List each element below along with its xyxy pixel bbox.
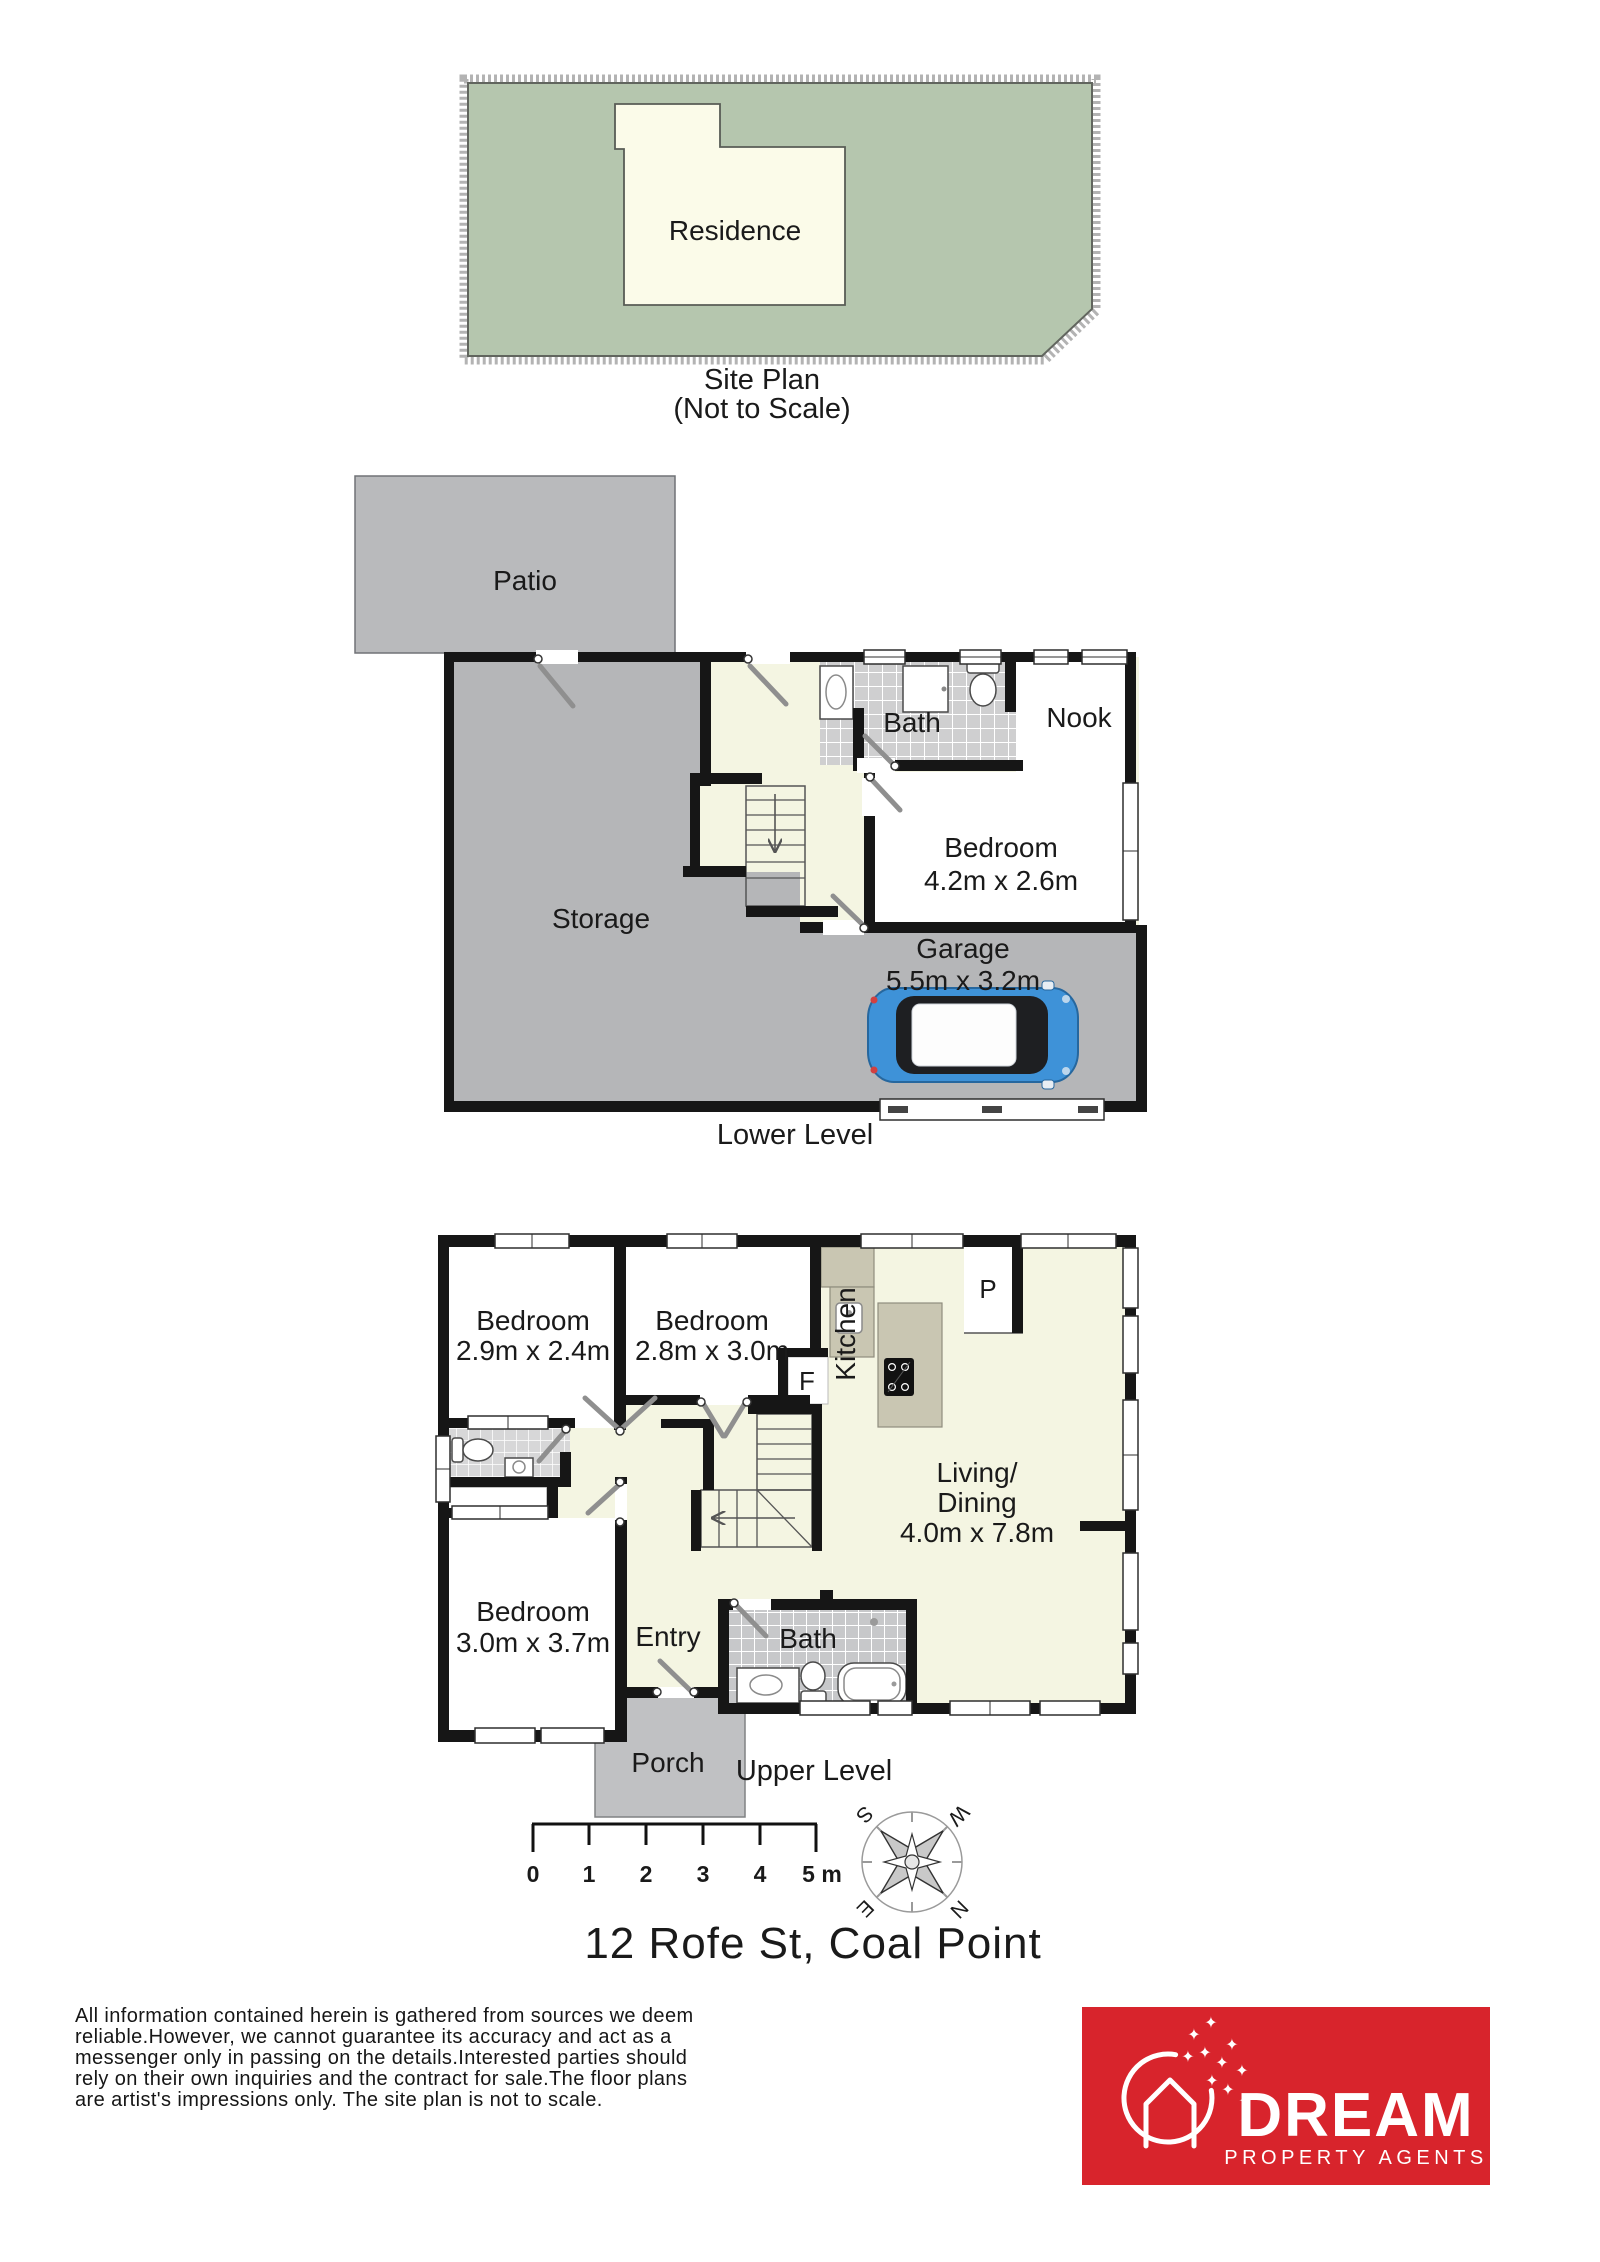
svg-text:✦: ✦ (1215, 2055, 1228, 2072)
sink-icon (750, 1675, 782, 1695)
storage-label: Storage (552, 903, 650, 934)
downlight-icon (870, 1618, 878, 1626)
svg-text:✦: ✦ (1225, 2037, 1238, 2054)
site-plan-subcaption: (Not to Scale) (673, 393, 850, 425)
window (495, 1234, 569, 1248)
sink-icon (826, 675, 846, 709)
toilet-icon (967, 660, 999, 706)
scale-tick-0: 0 (527, 1861, 540, 1887)
bedroom1-dims: 2.9m x 2.4m (456, 1335, 610, 1366)
window (800, 1701, 870, 1715)
window (1123, 1643, 1138, 1674)
scale-tick-4: 4 (754, 1861, 767, 1887)
window (1082, 650, 1127, 664)
floorplan-page: Residence Site Plan (Not to Scale) Patio (0, 0, 1600, 2262)
svg-text:✦: ✦ (1181, 2049, 1194, 2066)
shower-knob-icon (942, 687, 947, 692)
svg-text:✦: ✦ (1187, 2027, 1200, 2044)
scale-tick-3: 3 (697, 1861, 710, 1887)
window (1040, 1701, 1100, 1715)
lower-level-caption: Lower Level (717, 1119, 873, 1151)
window (1123, 1248, 1138, 1308)
bathtub-icon (838, 1663, 906, 1705)
entry-label: Entry (635, 1621, 700, 1652)
toilet-icon (801, 1662, 826, 1703)
disclaimer-line: messenger only in passing on the details… (75, 2047, 687, 2069)
living-label-1: Living/ (937, 1457, 1018, 1488)
pantry-label: P (979, 1274, 996, 1304)
window (960, 650, 1001, 664)
logo-brand-text: DREAM (1237, 2081, 1474, 2150)
window (468, 1416, 548, 1429)
window (436, 1436, 450, 1502)
compass-w: W (943, 1800, 973, 1830)
bath-upper-label: Bath (779, 1623, 837, 1654)
compass-e: E (852, 1895, 878, 1921)
upper-level-plan: Bedroom 2.9m x 2.4m Bedroom 2.8m x 3.0m … (436, 1234, 1138, 1817)
window (861, 1234, 963, 1248)
svg-text:✦: ✦ (1205, 2073, 1218, 2090)
svg-text:✦: ✦ (1204, 2015, 1217, 2032)
window (1021, 1234, 1116, 1248)
logo-tagline-text: PROPERTY AGENTS (1224, 2147, 1488, 2169)
window (1034, 650, 1068, 664)
porch-label: Porch (631, 1747, 704, 1778)
window (1123, 1553, 1138, 1630)
fridge-label: F (799, 1366, 815, 1396)
nook-label: Nook (1046, 702, 1112, 733)
living-label-2: Dining (937, 1487, 1016, 1518)
bedroom-lower-label: Bedroom (944, 832, 1058, 863)
bath-lower-label: Bath (883, 707, 941, 738)
disclaimer-line: reliable.However, we cannot guarantee it… (75, 2026, 672, 2048)
window (878, 1701, 912, 1715)
car-top-view-icon (868, 981, 1078, 1089)
svg-text:✦: ✦ (1198, 2045, 1211, 2062)
disclaimer-line: are artist's impressions only. The site … (75, 2089, 603, 2111)
residence-label: Residence (669, 215, 801, 246)
garage-label: Garage (916, 933, 1009, 964)
kitchen-counter (821, 1247, 874, 1287)
site-plan-caption: Site Plan (704, 364, 820, 396)
bedroom2-dims: 2.8m x 3.0m (635, 1335, 789, 1366)
site-plan: Residence Site Plan (Not to Scale) (464, 79, 1096, 425)
bedroom3-label: Bedroom (476, 1596, 590, 1627)
cooktop-icon (884, 1358, 914, 1396)
patio-label: Patio (493, 565, 557, 596)
bedroom-lower-dims: 4.2m x 2.6m (924, 865, 1078, 896)
garage-door (880, 1099, 1104, 1120)
floorplan-image: Residence Site Plan (Not to Scale) Patio (0, 0, 1600, 2262)
window (1123, 1316, 1138, 1373)
window (864, 650, 905, 664)
svg-text:✦: ✦ (1235, 2063, 1248, 2080)
compass-s: S (851, 1801, 877, 1827)
window (667, 1234, 737, 1248)
window (950, 1701, 1030, 1715)
disclaimer-line: All information contained herein is gath… (75, 2005, 694, 2027)
scale-tick-2: 2 (640, 1861, 653, 1887)
upper-level-caption: Upper Level (736, 1755, 892, 1787)
shower-icon (903, 666, 948, 712)
bedroom2-label: Bedroom (655, 1305, 769, 1336)
lower-level-plan: Patio (355, 476, 1147, 1151)
window (1123, 1400, 1138, 1510)
scale-tick-5: 5 m (802, 1861, 842, 1887)
scale-bar: 0 1 2 3 4 5 m (527, 1824, 842, 1887)
garage-dims: 5.5m x 3.2m (886, 965, 1040, 996)
agency-logo: ✦ ✦ ✦ ✦ ✦ ✦ ✦ ✦ ✦ ✦ DREAM PROPERTY AGENT… (1082, 2007, 1490, 2185)
window (475, 1728, 535, 1743)
window (452, 1506, 548, 1519)
kitchen-label: Kitchen (830, 1287, 861, 1380)
bedroom3-dims: 3.0m x 3.7m (456, 1627, 610, 1658)
toilet-icon (452, 1438, 493, 1462)
window (1123, 783, 1138, 920)
scale-tick-1: 1 (583, 1861, 596, 1887)
living-dims: 4.0m x 7.8m (900, 1517, 1054, 1548)
address-title: 12 Rofe St, Coal Point (584, 1919, 1041, 1968)
window (541, 1728, 604, 1743)
disclaimer-text: All information contained herein is gath… (75, 2005, 694, 2111)
bedroom1-label: Bedroom (476, 1305, 590, 1336)
svg-text:✦: ✦ (1221, 2082, 1234, 2099)
disclaimer-line: rely on their own inquiries and the cont… (75, 2068, 687, 2090)
